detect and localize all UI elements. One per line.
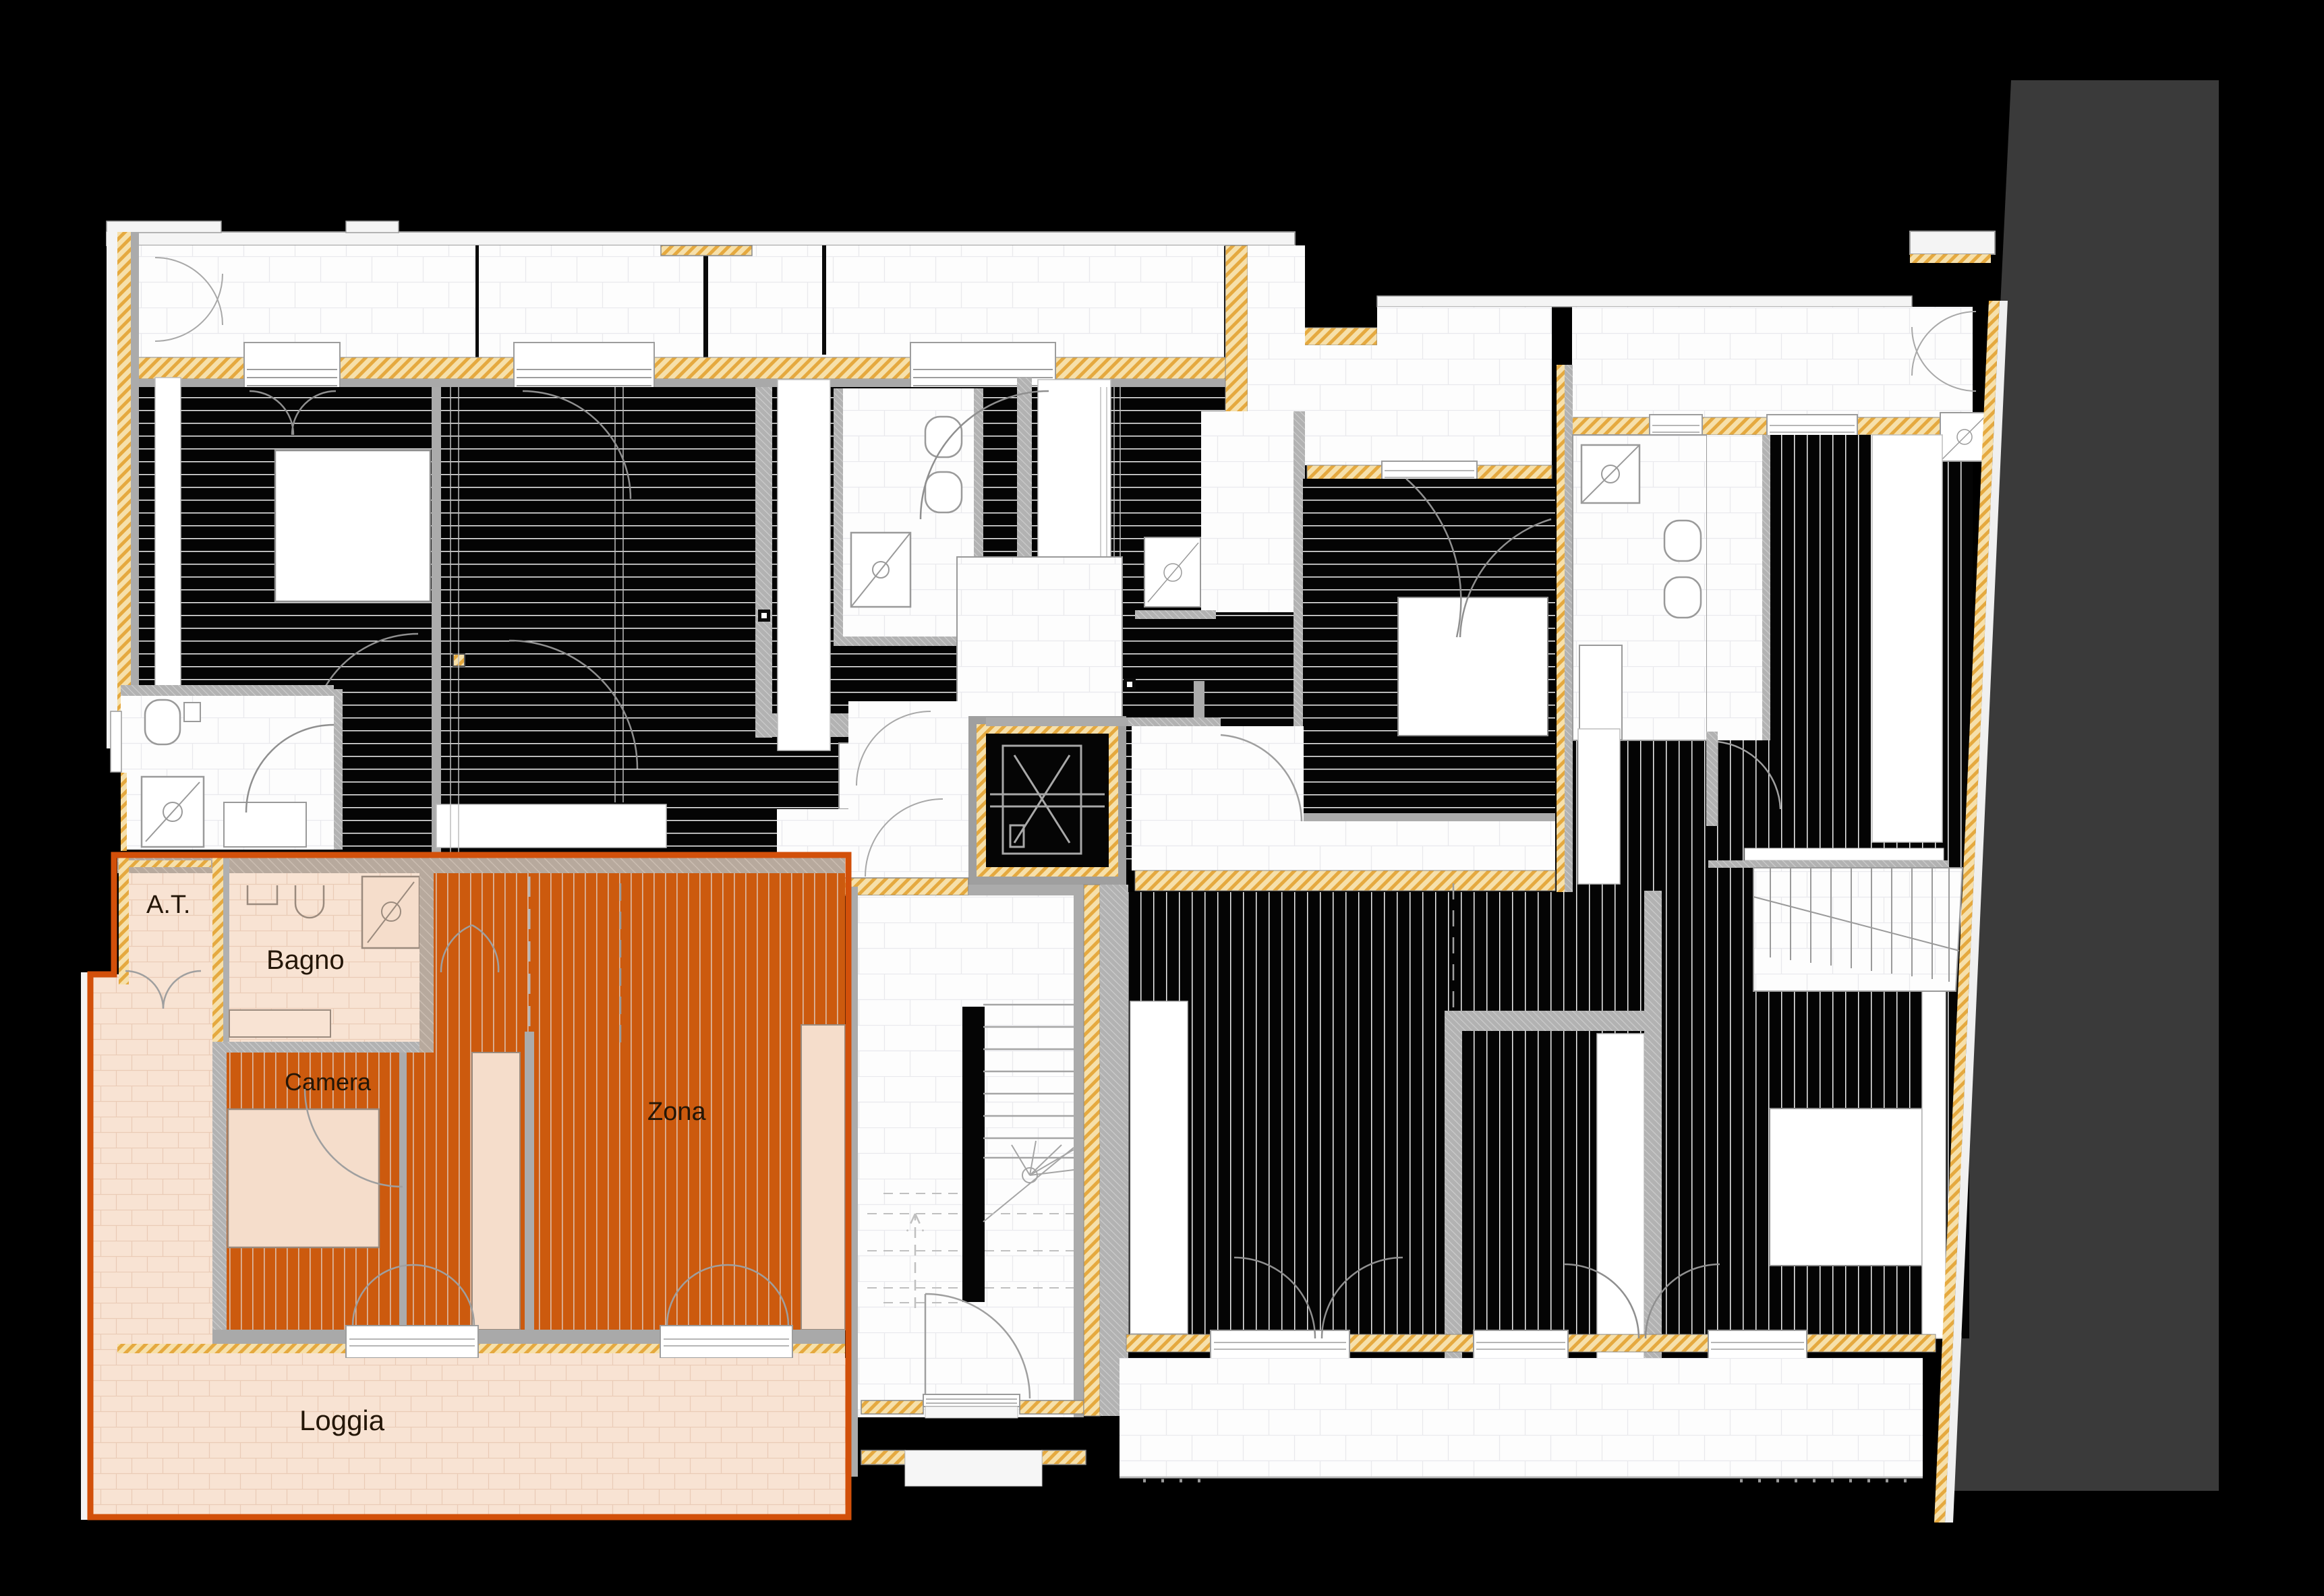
svg-text:Zona: Zona <box>647 1098 706 1126</box>
svg-text:Bagno: Bagno <box>266 945 345 975</box>
svg-text:Camera: Camera <box>285 1068 372 1096</box>
svg-text:A.T.: A.T. <box>146 891 190 919</box>
svg-text:Loggia: Loggia <box>299 1405 385 1436</box>
